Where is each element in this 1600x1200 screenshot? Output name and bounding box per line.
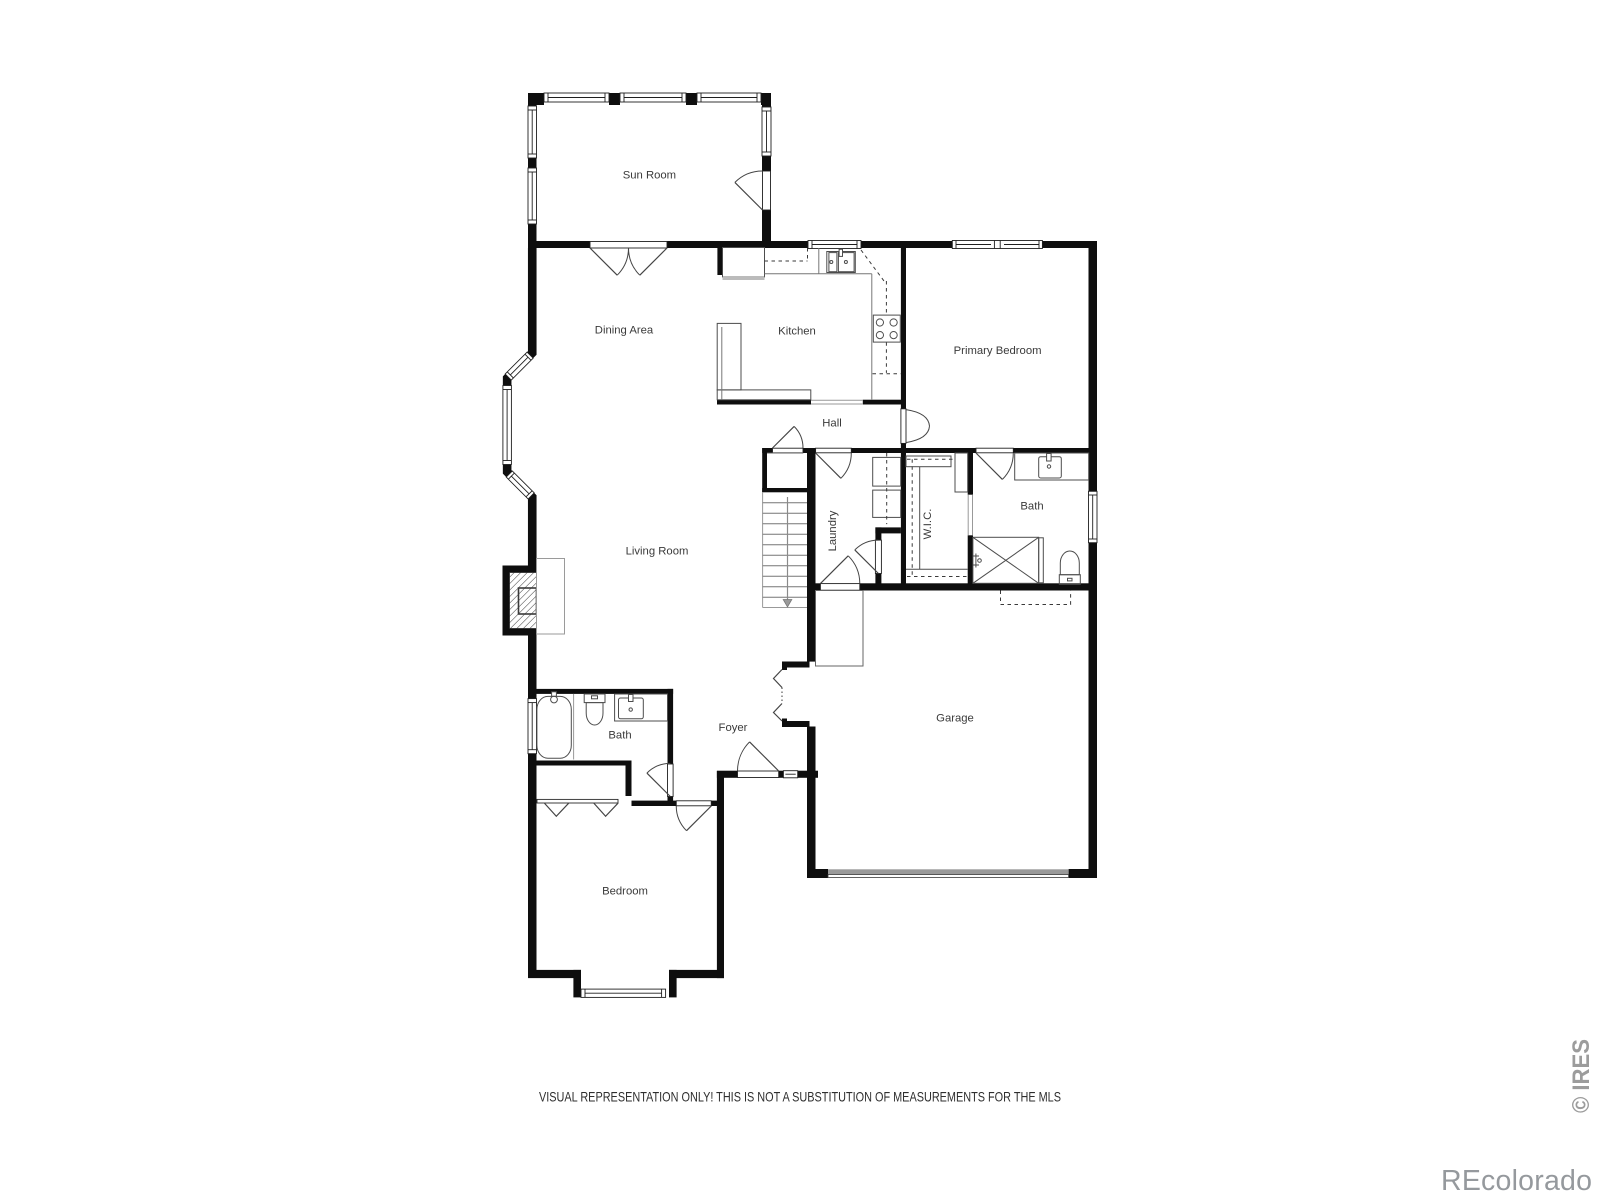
svg-text:Sun Room: Sun Room <box>623 169 676 181</box>
svg-text:Foyer: Foyer <box>719 722 748 734</box>
svg-text:Laundry: Laundry <box>827 510 839 551</box>
svg-text:© IRES: © IRES <box>1568 1039 1595 1113</box>
svg-text:Bath: Bath <box>608 730 631 742</box>
svg-text:Primary Bedroom: Primary Bedroom <box>954 345 1042 357</box>
svg-text:Garage: Garage <box>936 713 974 725</box>
svg-text:Dining Area: Dining Area <box>595 325 654 337</box>
svg-text:VISUAL REPRESENTATION ONLY! TH: VISUAL REPRESENTATION ONLY! THIS IS NOT … <box>539 1089 1061 1105</box>
svg-text:Living Room: Living Room <box>626 546 689 558</box>
svg-text:Bath: Bath <box>1020 501 1043 513</box>
svg-text:Kitchen: Kitchen <box>778 326 816 338</box>
svg-text:W.I.C.: W.I.C. <box>922 509 934 540</box>
svg-text:Hall: Hall <box>822 418 841 430</box>
svg-text:REcolorado: REcolorado <box>1441 1165 1592 1197</box>
svg-text:Bedroom: Bedroom <box>602 886 648 898</box>
